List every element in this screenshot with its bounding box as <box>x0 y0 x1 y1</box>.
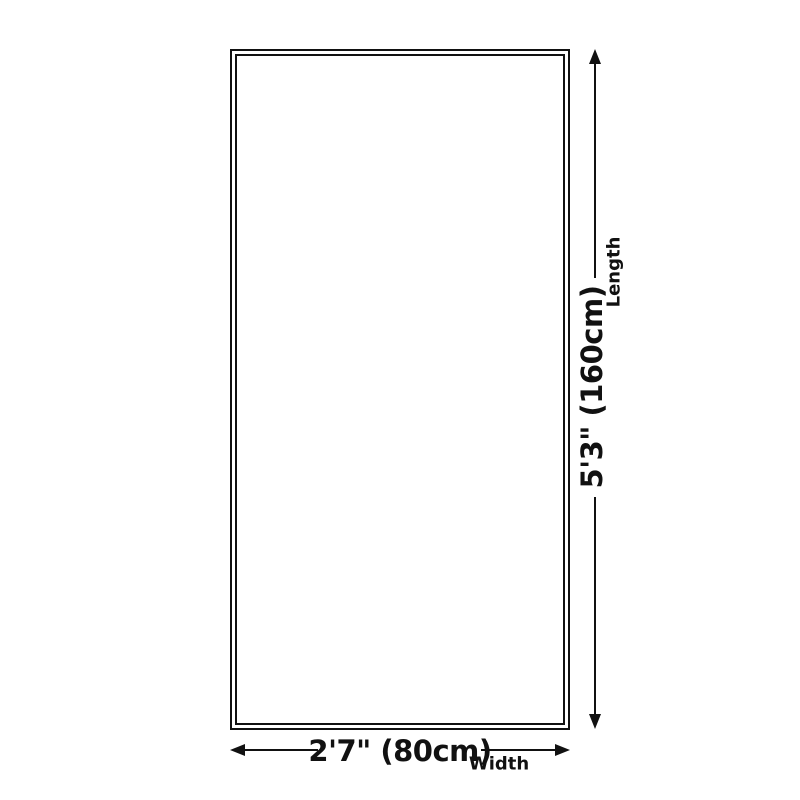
length-label: Length <box>604 237 625 308</box>
dimension-diagram: 5'3" (160cm) Length 2'7" (80cm) Width <box>0 0 800 800</box>
width-label: Width <box>469 754 529 775</box>
arrow-down-icon <box>589 714 601 729</box>
length-arrow-top-segment <box>594 62 596 278</box>
width-value: 2'7" (80cm) <box>308 734 491 768</box>
width-arrow-left-segment <box>244 749 318 751</box>
length-value: 5'3" (160cm) <box>575 286 609 489</box>
arrow-right-icon <box>555 744 570 756</box>
rug-outline <box>230 49 570 730</box>
rug-inner-border <box>235 54 565 725</box>
length-arrow-bottom-segment <box>594 497 596 716</box>
arrow-left-icon <box>230 744 245 756</box>
width-arrow-right-segment <box>481 749 559 751</box>
